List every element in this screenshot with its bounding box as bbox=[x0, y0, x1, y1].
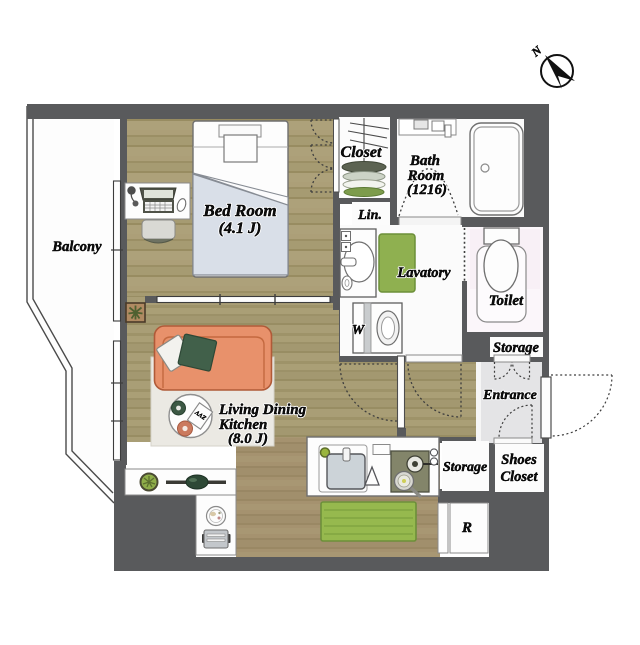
svg-text:W: W bbox=[352, 323, 366, 338]
svg-text:Lin.: Lin. bbox=[357, 208, 382, 223]
svg-text:Storage: Storage bbox=[443, 460, 487, 475]
svg-text:Living Dining: Living Dining bbox=[218, 402, 307, 418]
svg-text:(8.0 J): (8.0 J) bbox=[228, 431, 268, 447]
svg-text:Entrance: Entrance bbox=[482, 388, 537, 403]
svg-text:Closet: Closet bbox=[341, 144, 382, 161]
svg-text:Bed Room: Bed Room bbox=[202, 201, 276, 220]
svg-text:Toilet: Toilet bbox=[489, 293, 524, 309]
svg-text:Shoes: Shoes bbox=[501, 452, 537, 468]
svg-text:Closet: Closet bbox=[500, 469, 538, 485]
svg-text:(1216): (1216) bbox=[407, 182, 447, 198]
svg-text:R: R bbox=[461, 520, 472, 536]
svg-text:(4.1 J): (4.1 J) bbox=[219, 220, 262, 237]
svg-text:Bath: Bath bbox=[409, 153, 440, 169]
svg-text:Lavatory: Lavatory bbox=[396, 265, 451, 281]
svg-text:Storage: Storage bbox=[493, 340, 539, 356]
svg-text:Balcony: Balcony bbox=[51, 239, 102, 255]
